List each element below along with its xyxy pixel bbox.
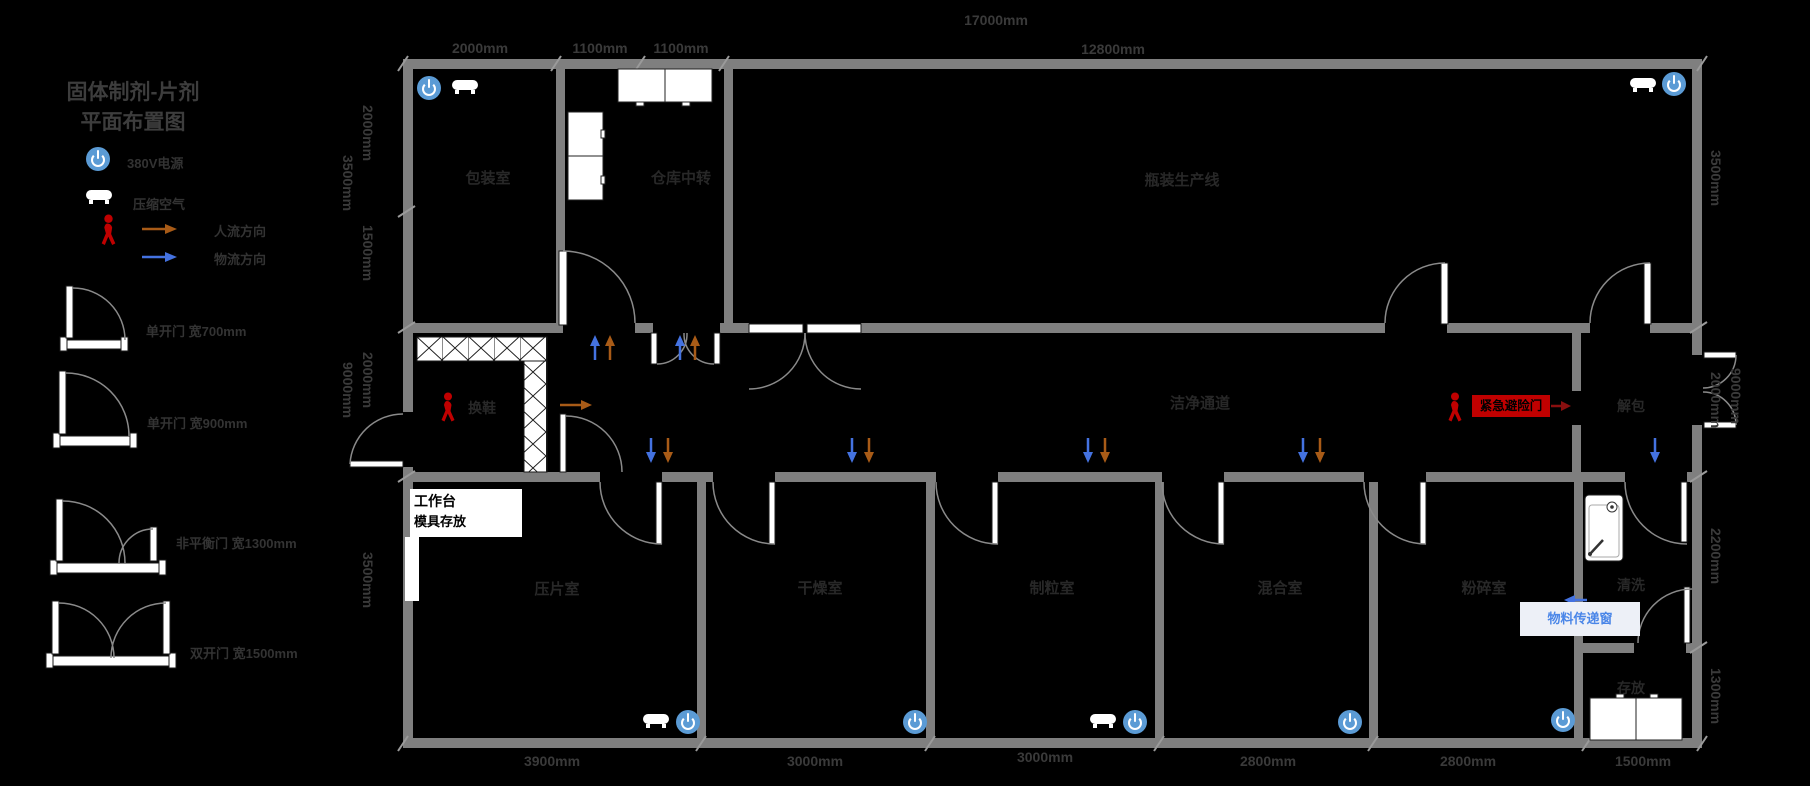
transfer-window-label: 物料传递窗 xyxy=(1520,602,1640,636)
workbench-note: 工作台 模具存放 xyxy=(410,489,522,537)
dim-top-3: 12800mm xyxy=(1081,41,1145,57)
power-icon-drying xyxy=(903,710,927,734)
dim-right-inner-0: 3500mm xyxy=(1708,150,1724,206)
emergency-exit-label: 紧急避险门 xyxy=(1472,395,1550,417)
floorplan-overlay xyxy=(0,0,1810,786)
power-icon-packaging xyxy=(417,76,441,100)
person-icon-legend xyxy=(102,215,116,245)
door-symbol-single-700 xyxy=(60,286,128,351)
dim-right-inner-1: 2000mm xyxy=(1708,372,1724,428)
workbench-note-line2: 模具存放 xyxy=(414,511,518,530)
dim-bottom-2: 3000mm xyxy=(1017,749,1073,765)
dim-bottom-3: 2800mm xyxy=(1240,753,1296,769)
dim-bottom-1: 3000mm xyxy=(787,753,843,769)
room-label-granulation: 制粒室 xyxy=(1029,577,1074,598)
room-label-crushing: 粉碎室 xyxy=(1461,577,1506,598)
room-label-unpacking: 解包 xyxy=(1617,396,1645,416)
power-icon-press xyxy=(676,710,700,734)
dim-left-inner-2: 2000mm xyxy=(360,352,376,408)
room-label-tablet-press: 压片室 xyxy=(534,578,579,599)
door-symbol-unbalanced-1300 xyxy=(50,499,166,575)
person-icon-emergency xyxy=(1449,393,1462,422)
compressed-air-icon-bottling xyxy=(1630,78,1656,88)
room-label-mixing: 混合室 xyxy=(1257,577,1302,598)
room-label-storage: 存放 xyxy=(1617,678,1645,698)
dim-top-0: 2000mm xyxy=(452,40,508,56)
dim-right-inner-2: 2200mm xyxy=(1708,528,1724,584)
shoe-change-exit-arrow xyxy=(560,400,592,410)
dim-top-total: 17000mm xyxy=(964,12,1028,28)
room-label-corridor: 洁净通道 xyxy=(1170,392,1230,413)
person-icon-shoe-change xyxy=(442,393,455,422)
room-label-shoe-change: 换鞋 xyxy=(468,398,496,418)
room-label-bottling: 瓶装生产线 xyxy=(1144,169,1219,190)
room-label-washing: 清洗 xyxy=(1617,575,1645,595)
people-flow-arrow-legend xyxy=(142,224,177,234)
storage-cabinets xyxy=(1590,694,1682,740)
compressed-air-icon-granulation xyxy=(1090,714,1116,724)
dim-bottom-5: 1500mm xyxy=(1615,753,1671,769)
dim-top-2: 1100mm xyxy=(653,40,708,56)
power-icon-mixing xyxy=(1338,710,1362,734)
dim-left-outer-1: 9000mm xyxy=(340,362,356,418)
room-label-drying: 干燥室 xyxy=(797,577,842,598)
workbench-counter xyxy=(405,537,419,601)
compressed-air-icon-packaging xyxy=(452,80,478,90)
flow-arrows-down xyxy=(646,438,1660,463)
compressed-air-icon-press xyxy=(643,714,669,724)
dim-bottom-4: 2800mm xyxy=(1440,753,1496,769)
dim-right-inner-3: 1300mm xyxy=(1708,668,1724,724)
floorplan-canvas: 固体制剂-片剂 平面布置图 380V电源 压缩空气 人流方向 物流方向 单开门 … xyxy=(0,0,1810,786)
material-flow-arrow-legend xyxy=(142,252,177,262)
dim-left-outer-0: 3500mm xyxy=(340,155,356,211)
emergency-exit-arrow xyxy=(1551,401,1571,411)
workbench-note-line1: 工作台 xyxy=(414,491,518,511)
sink-icon xyxy=(1585,495,1623,561)
door-symbol-single-900 xyxy=(53,371,137,448)
power-icon-granulation xyxy=(1123,710,1147,734)
door-symbol-double-1500 xyxy=(46,601,176,668)
room-label-packaging: 包装室 xyxy=(465,167,510,188)
dim-top-1: 1100mm xyxy=(572,40,627,56)
room-label-warehouse: 仓库中转 xyxy=(651,167,711,188)
dim-bottom-0: 3900mm xyxy=(524,753,580,769)
dim-left-inner-1: 1500mm xyxy=(360,225,376,281)
power-icon-bottling xyxy=(1662,72,1686,96)
dim-left-inner-3: 3500mm xyxy=(360,552,376,608)
dim-right-outer-0: 9000mm xyxy=(1728,368,1744,424)
power-icon-crushing xyxy=(1551,708,1575,732)
dim-left-inner-0: 2000mm xyxy=(360,105,376,161)
